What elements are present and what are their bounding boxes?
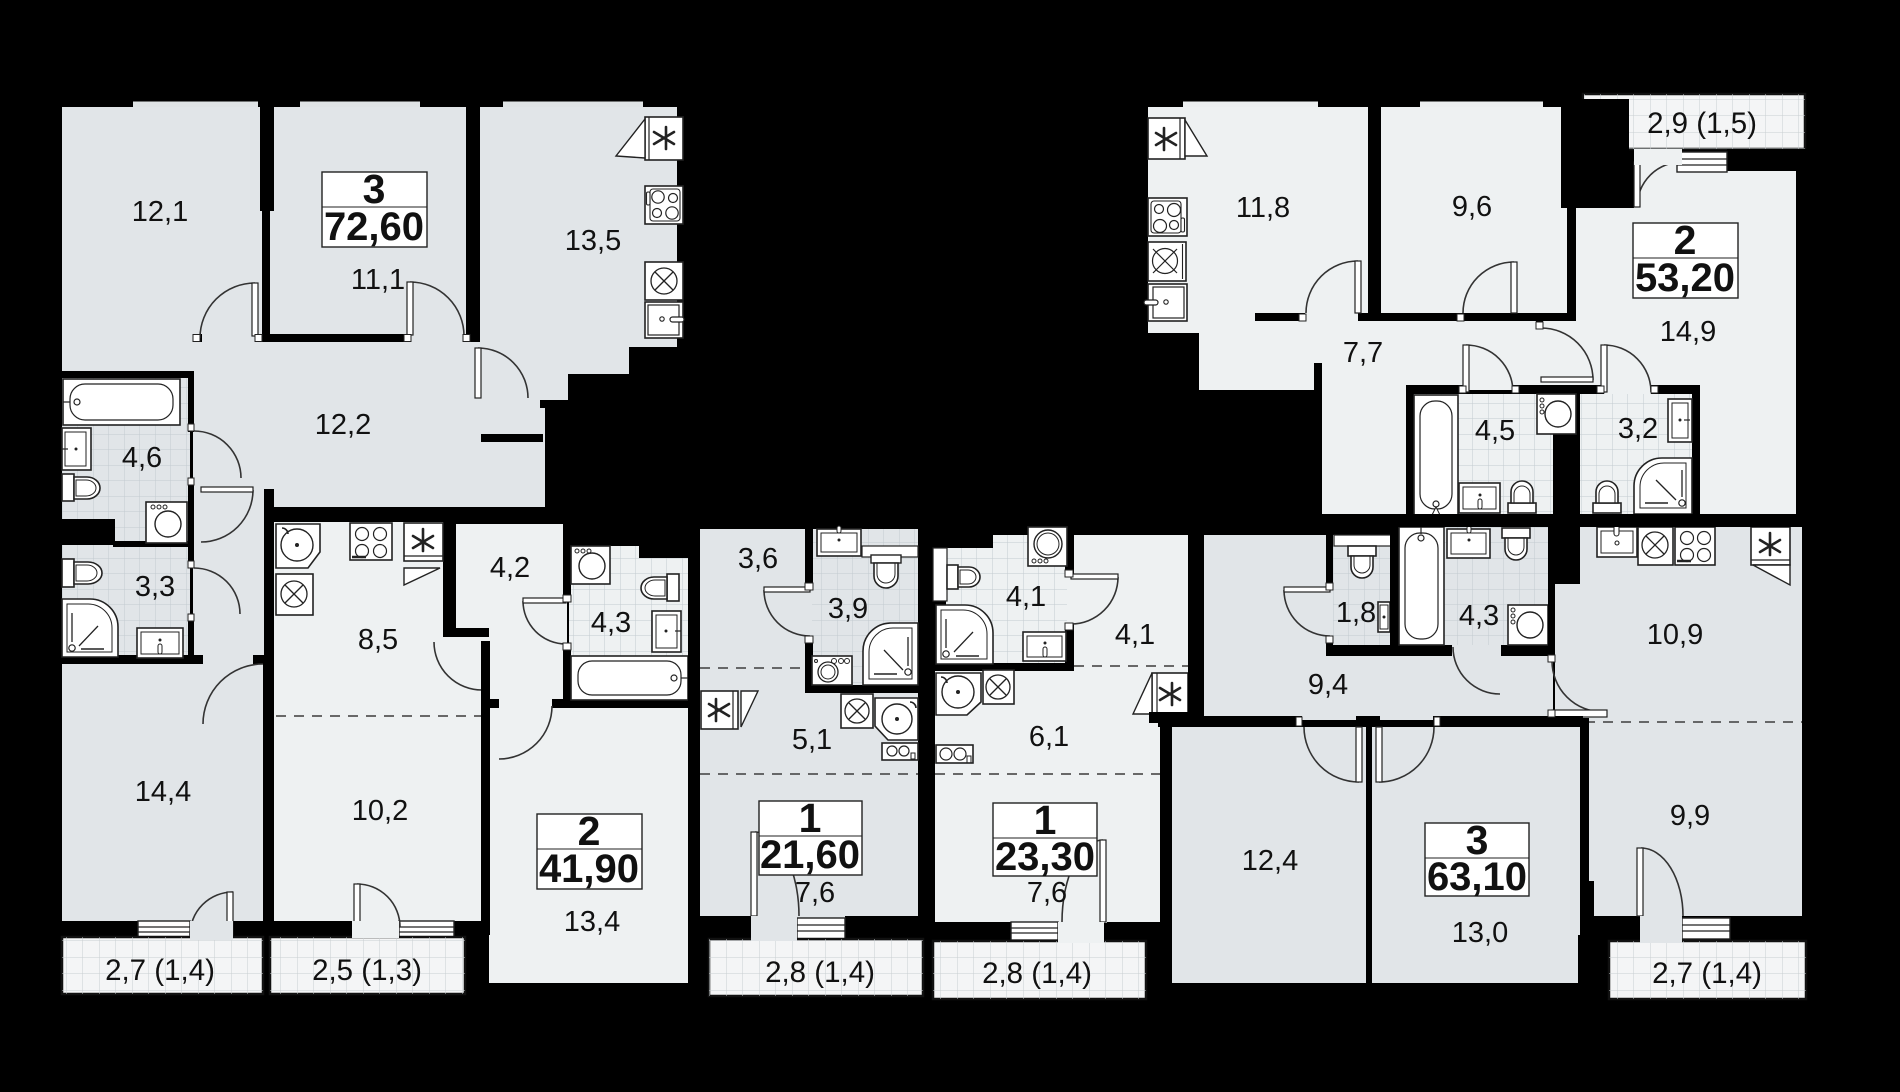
svg-text:2,8 (1,4): 2,8 (1,4) — [765, 956, 875, 989]
svg-text:3,3: 3,3 — [135, 571, 175, 603]
svg-text:9,9: 9,9 — [1670, 800, 1710, 832]
svg-text:3,2: 3,2 — [1618, 413, 1658, 445]
svg-text:2,9 (1,5): 2,9 (1,5) — [1647, 107, 1757, 140]
svg-text:10,2: 10,2 — [352, 795, 408, 827]
svg-text:2,8 (1,4): 2,8 (1,4) — [982, 957, 1092, 990]
svg-text:23,30: 23,30 — [995, 835, 1095, 879]
svg-text:21,60: 21,60 — [760, 833, 860, 877]
svg-text:2,5 (1,3): 2,5 (1,3) — [312, 954, 422, 987]
svg-text:14,4: 14,4 — [135, 776, 191, 808]
svg-text:3,6: 3,6 — [738, 543, 778, 575]
svg-text:2,7 (1,4): 2,7 (1,4) — [1652, 957, 1762, 990]
svg-text:7,6: 7,6 — [1027, 877, 1067, 909]
svg-text:63,10: 63,10 — [1427, 855, 1527, 899]
svg-text:12,1: 12,1 — [132, 196, 188, 228]
svg-text:4,6: 4,6 — [122, 442, 162, 474]
svg-text:6,1: 6,1 — [1029, 721, 1069, 753]
svg-text:3,9: 3,9 — [828, 593, 868, 625]
svg-text:53,20: 53,20 — [1635, 256, 1735, 300]
svg-text:4,2: 4,2 — [490, 552, 530, 584]
svg-text:12,4: 12,4 — [1242, 845, 1298, 877]
svg-text:9,6: 9,6 — [1452, 191, 1492, 223]
svg-text:7,6: 7,6 — [795, 877, 835, 909]
svg-text:10,9: 10,9 — [1647, 619, 1703, 651]
svg-text:13,4: 13,4 — [564, 906, 620, 938]
svg-text:4,1: 4,1 — [1006, 581, 1046, 613]
svg-text:4,3: 4,3 — [1459, 600, 1499, 632]
svg-text:5,1: 5,1 — [792, 724, 832, 756]
svg-text:4,5: 4,5 — [1475, 415, 1515, 447]
svg-text:1,8: 1,8 — [1336, 597, 1376, 629]
svg-text:11,1: 11,1 — [351, 264, 405, 296]
svg-text:4,1: 4,1 — [1115, 619, 1155, 651]
svg-text:9,4: 9,4 — [1308, 669, 1348, 701]
svg-text:13,5: 13,5 — [565, 225, 621, 257]
svg-text:4,3: 4,3 — [591, 607, 631, 639]
svg-text:41,90: 41,90 — [539, 847, 639, 891]
svg-text:72,60: 72,60 — [324, 205, 424, 249]
svg-text:7,7: 7,7 — [1343, 337, 1383, 369]
svg-text:12,2: 12,2 — [315, 409, 371, 441]
svg-text:8,5: 8,5 — [358, 624, 398, 656]
svg-text:14,9: 14,9 — [1660, 316, 1716, 348]
svg-text:2,7 (1,4): 2,7 (1,4) — [105, 954, 215, 987]
svg-text:11,8: 11,8 — [1236, 192, 1290, 224]
svg-text:13,0: 13,0 — [1452, 917, 1508, 949]
